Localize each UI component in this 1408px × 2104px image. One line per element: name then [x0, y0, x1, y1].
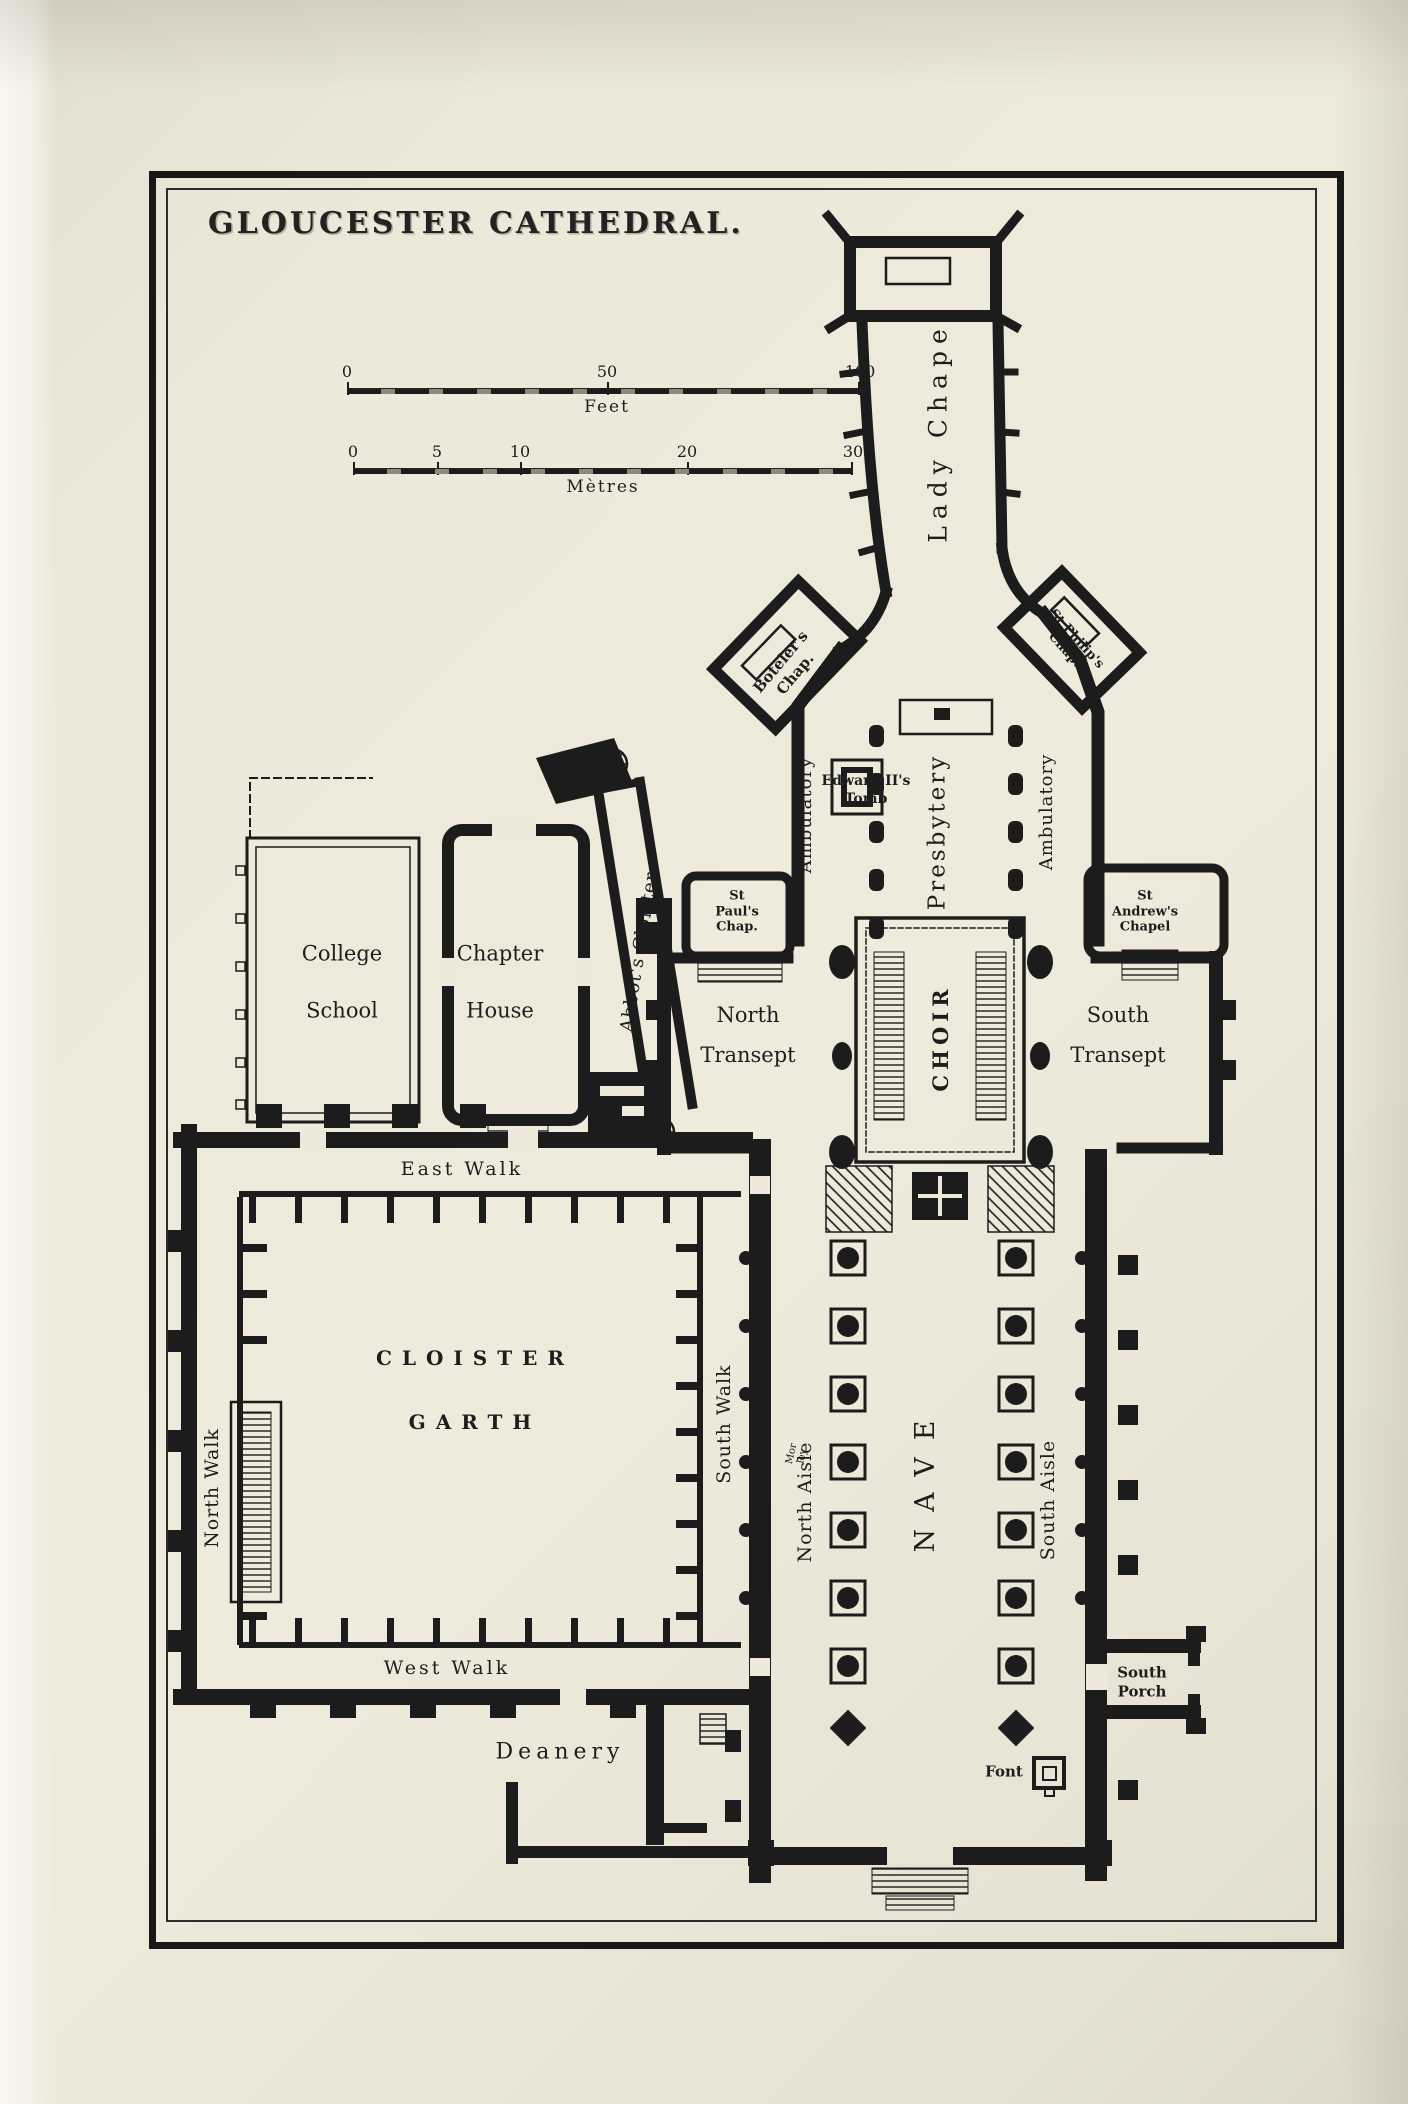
torn-paper-edge [0, 0, 56, 2104]
metres-tick-0: 0 [348, 442, 358, 461]
label-south-walk: South Walk [713, 1364, 737, 1483]
metres-tick-5: 5 [432, 442, 442, 461]
feet-tick-0: 0 [342, 362, 352, 381]
feet-tick-50: 50 [597, 362, 617, 381]
scanned-map-page: { "title": "GLOUCESTER CATHEDRAL.", "sca… [0, 0, 1408, 2104]
label-deanery: Deanery [496, 1738, 625, 1766]
metres-unit-label: Mètres [566, 477, 639, 497]
feet-tick-100: 100 [845, 362, 876, 381]
label-north-transept: North Transept [700, 996, 795, 1076]
label-cloister-garth: CLOISTER GARTH [376, 1326, 574, 1454]
label-font: Font [985, 1763, 1023, 1782]
scale-bar-metres: 0 5 10 20 30 Mètres [353, 442, 853, 502]
label-ambulatory-left: Ambulatory [795, 757, 818, 874]
metres-bar [353, 468, 853, 474]
label-south-transept: South Transept [1070, 996, 1165, 1076]
label-lady-chapel: Lady Chapel [922, 307, 953, 543]
label-presbytery: Presbytery [924, 754, 953, 910]
label-chapter-house: Chapter House [457, 925, 543, 1038]
metres-tick-10: 10 [510, 442, 530, 461]
label-choir: CHOIR [928, 984, 954, 1091]
label-morley: Mor ley [784, 1442, 810, 1467]
label-college-school: College School [302, 925, 382, 1038]
label-west-walk: West Walk [384, 1657, 510, 1681]
label-nave: NAVE [909, 1404, 943, 1553]
label-east-walk: East Walk [401, 1158, 523, 1182]
label-st-andrews-chapel: St Andrew's Chapel [1112, 889, 1178, 936]
map-title: GLOUCESTER CATHEDRAL. [208, 206, 744, 241]
scale-bar-feet: 0 50 100 Feet [347, 362, 860, 422]
label-st-pauls-chapel: St Paul's Chap. [715, 889, 759, 936]
feet-bar [347, 388, 860, 394]
label-edward-ii-tomb: Edward II's Tomb [822, 772, 911, 808]
label-north-walk: North Walk [201, 1428, 225, 1548]
metres-tick-30: 30 [843, 442, 863, 461]
paper-shading-right [1338, 0, 1408, 2104]
label-south-aisle: South Aisle [1037, 1440, 1061, 1560]
paper-shading-top [0, 0, 1408, 90]
label-ambulatory-right: Ambulatory [1036, 754, 1059, 871]
metres-tick-20: 20 [677, 442, 697, 461]
feet-unit-label: Feet [584, 397, 630, 417]
label-south-porch: South Porch [1117, 1663, 1167, 1701]
